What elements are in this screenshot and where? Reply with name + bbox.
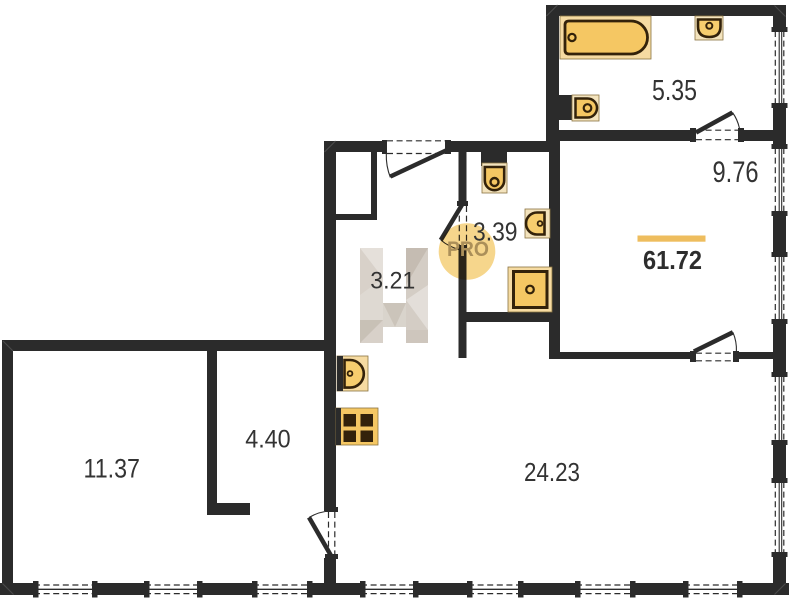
svg-text:3.39: 3.39 xyxy=(473,216,518,246)
svg-text:9.76: 9.76 xyxy=(713,156,759,189)
svg-text:61.72: 61.72 xyxy=(643,247,702,275)
svg-text:24.23: 24.23 xyxy=(524,457,580,487)
svg-text:4.40: 4.40 xyxy=(245,427,291,454)
svg-text:11.37: 11.37 xyxy=(84,454,141,484)
svg-text:3.21: 3.21 xyxy=(370,268,415,295)
svg-text:5.35: 5.35 xyxy=(652,75,697,107)
